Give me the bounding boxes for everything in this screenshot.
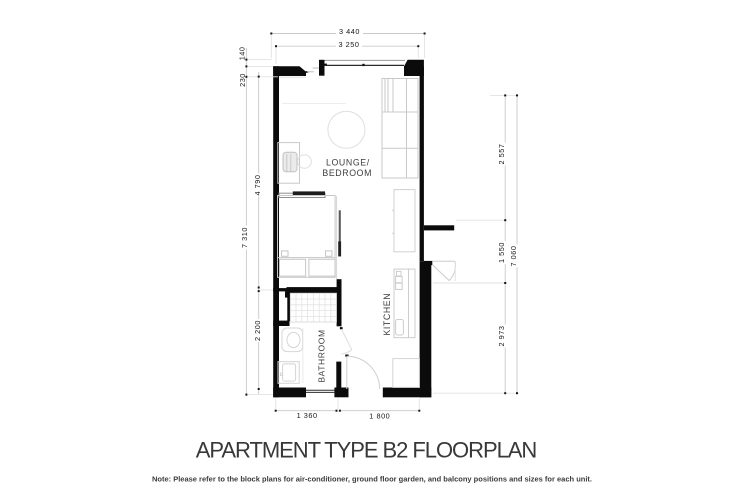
svg-text:Note: Please refer to the bloc: Note: Please refer to the block plans fo…: [152, 474, 592, 483]
svg-text:2 557: 2 557: [497, 143, 506, 164]
svg-text:APARTMENT TYPE B2 FLOORPLAN: APARTMENT TYPE B2 FLOORPLAN: [196, 437, 537, 462]
svg-text:BEDROOM: BEDROOM: [322, 168, 372, 178]
svg-text:230: 230: [238, 73, 247, 87]
svg-text:BATHROOM: BATHROOM: [316, 329, 326, 382]
svg-text:7 310: 7 310: [240, 227, 249, 248]
svg-text:4 790: 4 790: [253, 174, 262, 195]
svg-text:1 800: 1 800: [369, 411, 390, 420]
svg-text:1 360: 1 360: [297, 411, 318, 420]
svg-text:7 060: 7 060: [509, 245, 518, 266]
svg-text:2 200: 2 200: [253, 320, 262, 341]
svg-text:3 250: 3 250: [338, 40, 359, 49]
svg-text:KITCHEN: KITCHEN: [382, 293, 392, 336]
svg-text:LOUNGE/: LOUNGE/: [326, 157, 370, 167]
svg-text:3 440: 3 440: [339, 27, 360, 36]
svg-text:140: 140: [238, 46, 247, 60]
svg-text:2 973: 2 973: [497, 325, 506, 346]
svg-text:1 550: 1 550: [497, 242, 506, 263]
